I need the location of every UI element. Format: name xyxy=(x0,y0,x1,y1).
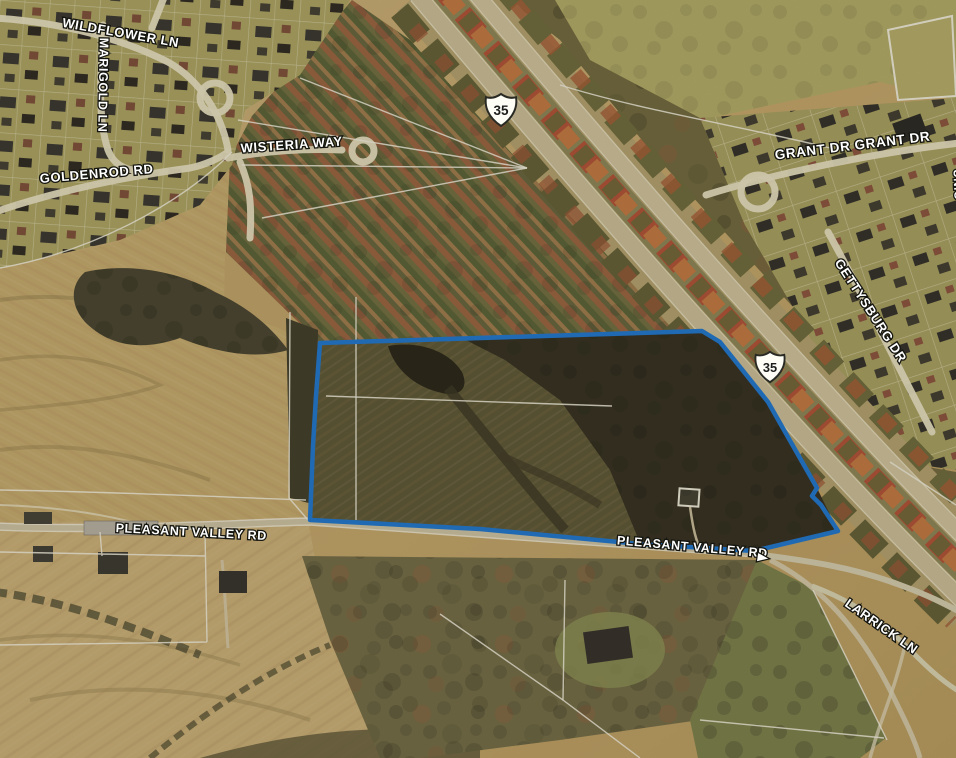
us35-route-number: 35 xyxy=(493,103,509,118)
aerial-map[interactable]: WILDFLOWER LN MARIGOLD LN GOLDENROD RD W… xyxy=(0,0,956,758)
road-label-marigold-ln: MARIGOLD LN xyxy=(95,38,111,133)
haze-overlay xyxy=(0,0,956,758)
map-stage[interactable]: WILDFLOWER LN MARIGOLD LN GOLDENROD RD W… xyxy=(0,0,956,758)
us35-route-number: 35 xyxy=(763,360,777,375)
